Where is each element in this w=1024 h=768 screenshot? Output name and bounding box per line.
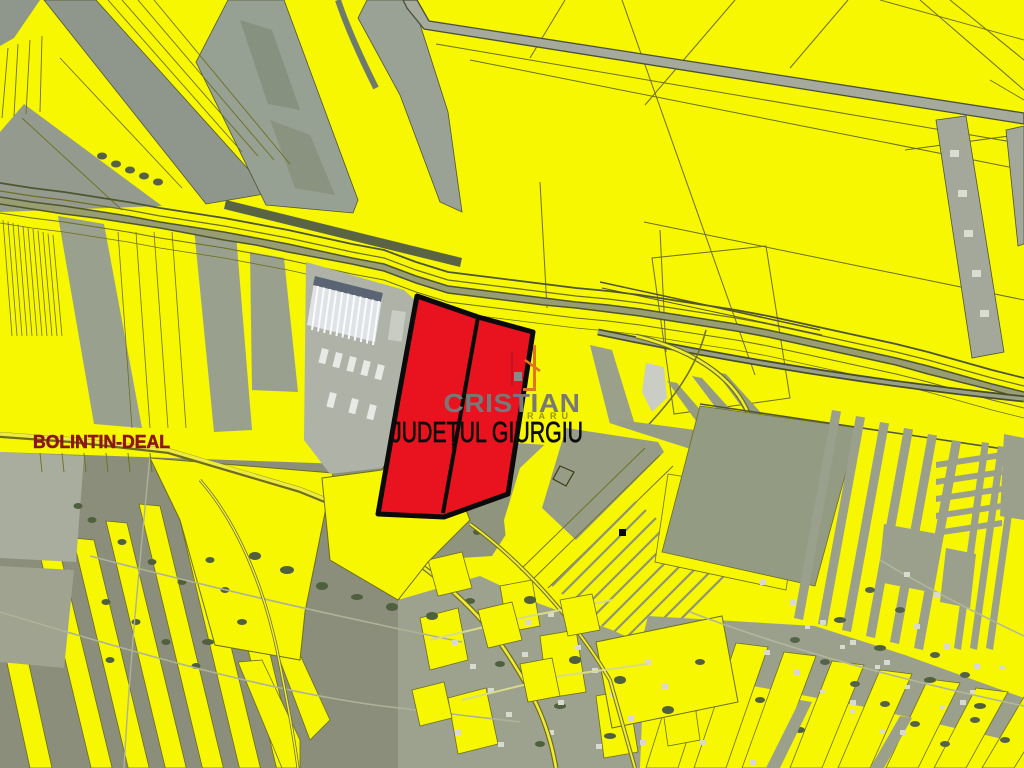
svg-text:JUDEȚUL GIURGIU: JUDEȚUL GIURGIU bbox=[391, 417, 583, 449]
svg-text:BOLINTIN-DEAL: BOLINTIN-DEAL bbox=[33, 432, 170, 452]
